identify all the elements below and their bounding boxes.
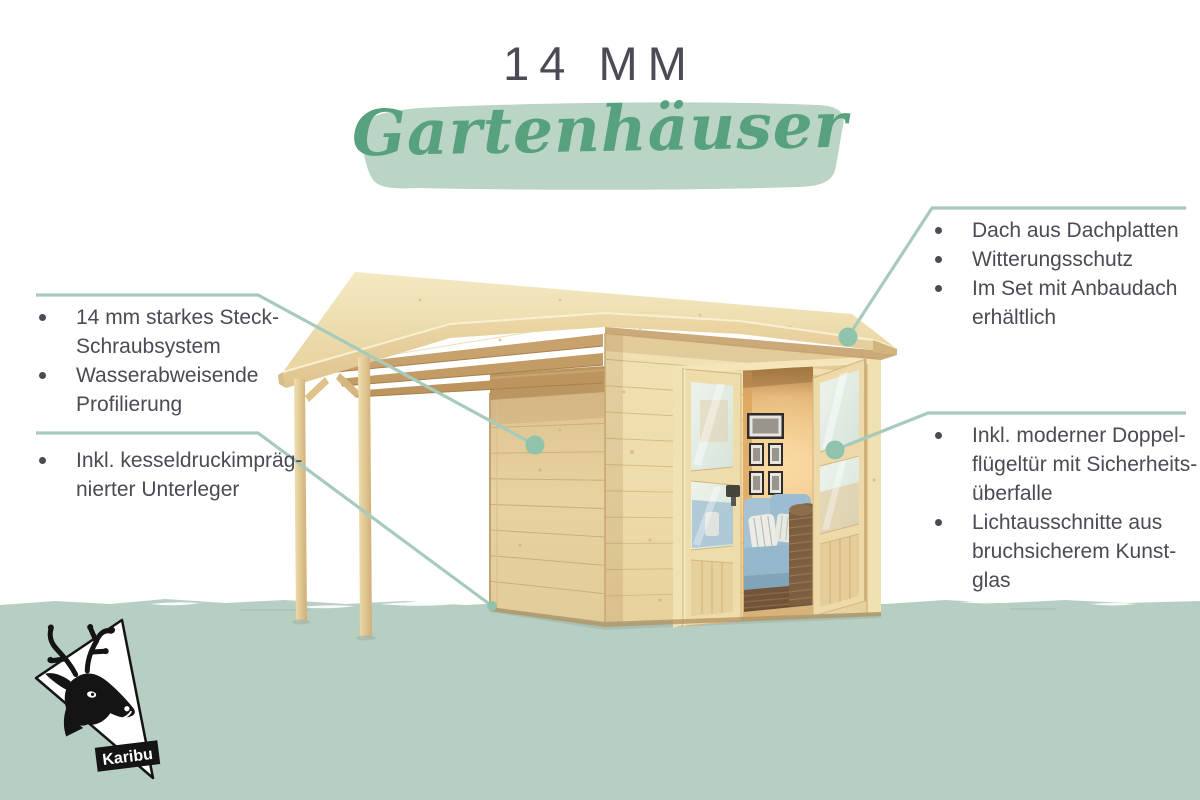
garden-house-illustration <box>278 272 897 641</box>
bullet-icon <box>935 227 942 234</box>
marker-dot-roof <box>839 328 858 347</box>
callout-line: flügeltür mit Sicherheits- <box>972 453 1197 476</box>
callout-line: Inkl. moderner Doppel- <box>972 424 1186 447</box>
callout-line: Dach aus Dachplatten <box>972 219 1179 242</box>
callout-item: Wasserabweisende Profilierung <box>36 361 306 419</box>
bullet-icon <box>935 285 942 292</box>
bullet-icon <box>935 519 942 526</box>
door-right-leaf <box>813 359 866 616</box>
bullet-icon <box>39 314 46 321</box>
callout-item: Inkl. kesseldruckimpräg- nierter Unterle… <box>36 446 316 504</box>
callout-right-top: Dach aus Dachplatten Witterungsschutz Im… <box>932 216 1198 332</box>
side-wall <box>490 366 605 622</box>
marker-dot-wall <box>526 436 545 455</box>
marker-dot-base <box>487 601 497 611</box>
callout-line: Im Set mit Anbaudach <box>972 277 1177 300</box>
callout-line: Wasserabweisende <box>76 364 258 387</box>
bullet-icon <box>935 256 942 263</box>
bullet-icon <box>935 432 942 439</box>
callout-line: überfalle <box>972 482 1053 505</box>
callout-line: Profilierung <box>76 393 182 416</box>
callout-line: bruchsicherem Kunst- <box>972 540 1176 563</box>
callout-line: Inkl. kesseldruckimpräg- <box>76 449 302 472</box>
callout-line: nierter Unterleger <box>76 478 239 501</box>
bullet-icon <box>39 457 46 464</box>
callout-line: erhältlich <box>972 306 1056 329</box>
callout-line: Witterungsschutz <box>972 248 1133 271</box>
bullet-icon <box>39 372 46 379</box>
sofa <box>744 494 813 618</box>
callout-line: glas <box>972 569 1011 592</box>
callout-item: Dach aus Dachplatten <box>932 216 1198 245</box>
callout-right-bottom: Inkl. moderner Doppel- flügeltür mit Sic… <box>932 421 1198 595</box>
callout-item: 14 mm starkes Steck- Schraubsystem <box>36 303 306 361</box>
callout-item: Witterungsschutz <box>932 245 1198 274</box>
callout-line: Schraubsystem <box>76 335 221 358</box>
infographic-page: { "title": "14 MM", "subtitle": "Gartenh… <box>0 0 1200 800</box>
callout-left-bottom: Inkl. kesseldruckimpräg- nierter Unterle… <box>36 446 316 504</box>
callout-left-top: 14 mm starkes Steck- Schraubsystem Wasse… <box>36 303 306 419</box>
page-title: 14 MM <box>0 36 1200 91</box>
marker-dot-door <box>826 441 845 460</box>
callout-item: Im Set mit Anbaudach erhältlich <box>932 274 1198 332</box>
callout-item: Inkl. moderner Doppel- flügeltür mit Sic… <box>932 421 1198 508</box>
callout-line: 14 mm starkes Steck- <box>76 306 279 329</box>
callout-line: Lichtausschnitte aus <box>972 511 1162 534</box>
door-left-leaf <box>683 369 741 626</box>
callout-item: Lichtausschnitte aus bruchsicherem Kunst… <box>932 508 1198 595</box>
